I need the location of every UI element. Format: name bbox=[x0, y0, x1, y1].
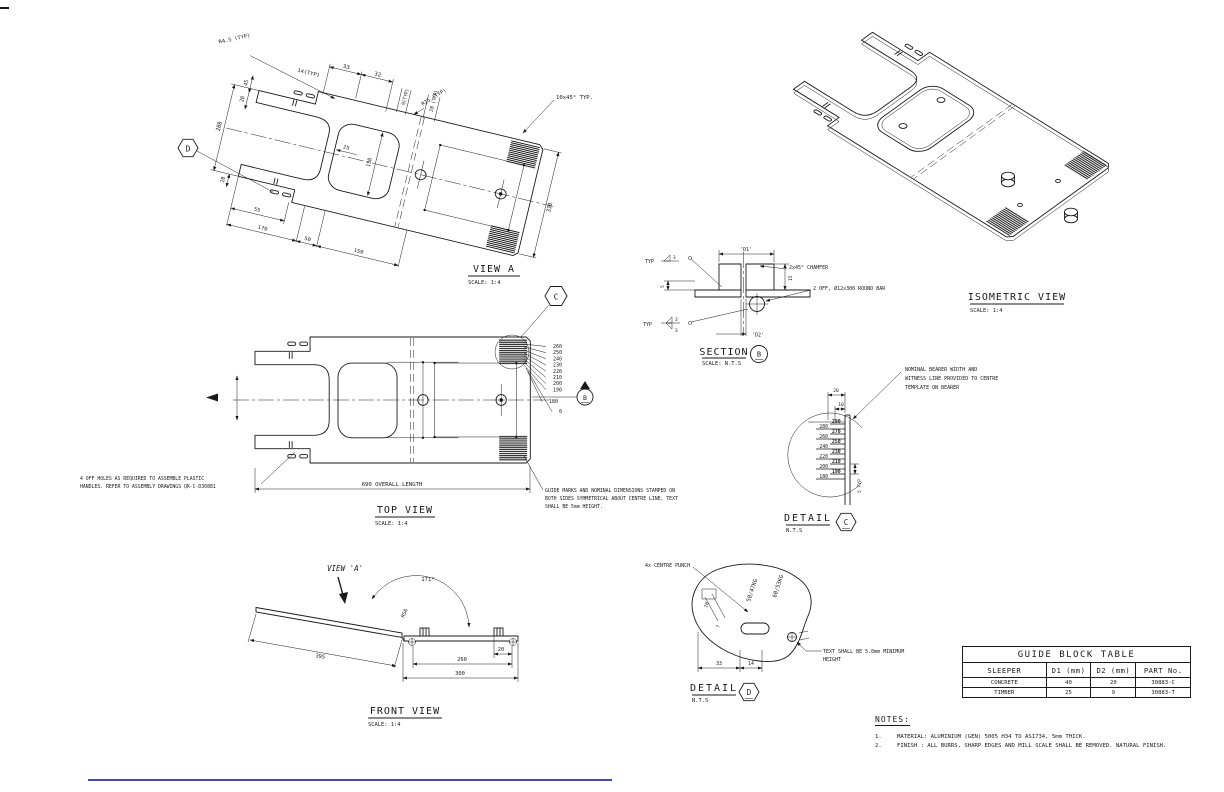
section-b: 'D1' 'D2' 5 15 TYP 3 TYP 3 3 2x45° CHAMF… bbox=[643, 247, 886, 367]
chamfer-label: 10x45° TYP. bbox=[556, 95, 593, 101]
view-a: 33 32 14(TYP) R4.5 (TYP) 9(TYP) 28 (TYP)… bbox=[176, 26, 593, 299]
dim-150: 150 bbox=[353, 248, 364, 256]
detail-c-right-values: 290 270 250 230 210 190 bbox=[832, 419, 841, 475]
edge-mark bbox=[0, 7, 9, 9]
dim-150i: 150 bbox=[366, 157, 374, 167]
svg-text:280: 280 bbox=[819, 424, 828, 430]
front-dim-260: 260 bbox=[457, 657, 467, 663]
view-a-scale: SCALE: 1:4 bbox=[468, 280, 500, 286]
front-view-flat-bar bbox=[404, 636, 518, 641]
section-b-scale: SCALE: N.T.S bbox=[702, 361, 741, 367]
detail-c-dim-10: 10 bbox=[838, 402, 844, 408]
detail-d-dimensions bbox=[698, 594, 822, 672]
cell-part: 30883-C bbox=[1136, 678, 1191, 688]
top-view-guide-marks-top bbox=[499, 340, 527, 365]
detail-c-note: NOMINAL BEARER WIDTH AND WITNESS LINE PR… bbox=[905, 367, 998, 391]
callout-c-letter: C bbox=[554, 293, 559, 302]
top-view-scale: SCALE: 1:4 bbox=[375, 521, 407, 527]
svg-text:220: 220 bbox=[819, 454, 828, 460]
detail-c-bubble: C bbox=[844, 518, 849, 527]
svg-text:250: 250 bbox=[832, 439, 841, 445]
engineering-drawing-sheet: 33 32 14(TYP) R4.5 (TYP) 9(TYP) 28 (TYP)… bbox=[0, 0, 1224, 792]
detail-d-title: DETAIL bbox=[690, 683, 738, 694]
weld-3a: 3 bbox=[675, 317, 678, 323]
dim-170: 170 bbox=[257, 225, 268, 233]
round-bar-note: 2 OFF, Ø12x300 ROUND BAR bbox=[813, 285, 886, 292]
detail-d-note: TEXT SHALL BE 5.0mm MINIMUM HEIGHT bbox=[823, 649, 904, 663]
dim-20a: 20 bbox=[239, 96, 247, 103]
svg-text:180: 180 bbox=[549, 399, 558, 405]
front-r50: R50 bbox=[400, 608, 409, 619]
section-dim-5: 5 bbox=[660, 285, 666, 288]
weld-symbol-bottom: TYP 3 3 bbox=[643, 309, 748, 334]
detail-c-dim-5typ: 5 TYP bbox=[857, 479, 863, 493]
dim-55: 55 bbox=[253, 207, 261, 214]
svg-text:260: 260 bbox=[553, 344, 562, 350]
front-angle-171: 171° bbox=[421, 577, 434, 583]
section-b-letter: B bbox=[583, 394, 587, 402]
isometric-scale: SCALE: 1:4 bbox=[970, 308, 1002, 314]
col-header-part: PART No. bbox=[1136, 663, 1191, 678]
detail-d-dim-14: 14 bbox=[748, 661, 754, 667]
isometric-bosses bbox=[899, 98, 1078, 223]
overall-length-label: 690 OVERALL LENGTH bbox=[362, 482, 423, 488]
callout-d-letter: D bbox=[186, 145, 191, 154]
guide-block-table: GUIDE BLOCK TABLE SLEEPER D1 (mm) D2 (mm… bbox=[962, 646, 1191, 698]
dim-25: 25 bbox=[342, 145, 350, 152]
top-view-guide-marks-bottom bbox=[499, 435, 527, 460]
note-number: 1. bbox=[875, 734, 897, 740]
note-item: 2. FINISH : ALL BURRS, SHARP EDGES AND M… bbox=[875, 743, 1205, 749]
isometric-view: ISOMETRIC VIEW SCALE: 1:4 bbox=[782, 24, 1112, 314]
svg-text:4 OFF HOLES AS REQUIRED TO ASS: 4 OFF HOLES AS REQUIRED TO ASSEMBLE PLAS… bbox=[80, 476, 204, 482]
table-row: CONCRETE 40 20 30883-C bbox=[963, 678, 1191, 688]
cell-part: 30883-T bbox=[1136, 688, 1191, 698]
detail-d-bubble: D bbox=[747, 688, 752, 697]
dim-r45: R4.5 (TYP) bbox=[218, 33, 251, 45]
view-direction-arrow bbox=[206, 394, 218, 402]
detail-d-kg2: 60/53KG bbox=[772, 574, 785, 599]
col-header-sleeper: SLEEPER bbox=[963, 663, 1047, 678]
svg-text:NOMINAL BEARER WIDTH AND: NOMINAL BEARER WIDTH AND bbox=[905, 367, 977, 373]
svg-text:BOTH SIDES SYMMETRICAL ABOUT: BOTH SIDES SYMMETRICAL ABOUT CENTRE LINE… bbox=[545, 496, 678, 502]
dim-208: 208 bbox=[216, 121, 224, 132]
top-view-note-left: 4 OFF HOLES AS REQUIRED TO ASSEMBLE PLAS… bbox=[80, 452, 295, 490]
svg-text:190: 190 bbox=[553, 387, 562, 393]
top-view-note-right: GUIDE MARKS AND NOMINAL DIMENSIONS STAMP… bbox=[524, 456, 678, 510]
weld-3-top: 3 bbox=[673, 255, 676, 261]
view-a-guide-marks-top bbox=[506, 140, 540, 169]
section-b-dimensions bbox=[664, 250, 810, 336]
svg-text:190: 190 bbox=[832, 469, 841, 475]
svg-text:HEIGHT: HEIGHT bbox=[823, 657, 841, 663]
detail-d-dim-10: 10 bbox=[703, 601, 710, 608]
note-number: 2. bbox=[875, 743, 897, 749]
dim-14typ: 14(TYP) bbox=[297, 68, 321, 79]
col-header-d2: D2 (mm) bbox=[1091, 663, 1136, 678]
note-text: FINISH : ALL BURRS, SHARP EDGES AND MILL… bbox=[897, 743, 1166, 749]
section-d2: 'D2' bbox=[752, 333, 764, 339]
detail-c-scale: N.T.S bbox=[786, 528, 802, 534]
detail-d-scale: N.T.S bbox=[692, 698, 708, 704]
svg-text:290: 290 bbox=[832, 419, 841, 425]
table-title: GUIDE BLOCK TABLE bbox=[963, 647, 1191, 663]
cell-d2: 9 bbox=[1091, 688, 1136, 698]
detail-c-title: DETAIL bbox=[784, 513, 832, 524]
section-b-title: SECTION bbox=[699, 347, 748, 358]
top-view-title: TOP VIEW bbox=[377, 505, 433, 516]
detail-d-punch: 4x CENTRE PUNCH bbox=[645, 563, 690, 569]
svg-text:SHALL BE 5mm HEIGHT.: SHALL BE 5mm HEIGHT. bbox=[545, 504, 603, 510]
guide-mark-values: 260 250 240 230 220 210 200 190 180 0 bbox=[524, 344, 562, 415]
weld-typ-bottom: TYP bbox=[643, 322, 652, 328]
cell-d1: 25 bbox=[1046, 688, 1091, 698]
section-b-bubble: B bbox=[757, 351, 761, 359]
svg-text:200: 200 bbox=[553, 381, 562, 387]
dim-20b: 20 bbox=[220, 176, 228, 183]
front-view-end-marks bbox=[408, 639, 517, 646]
svg-text:210: 210 bbox=[832, 459, 841, 465]
svg-text:HANDLES. REFER TO ASSEMBLY DRA: HANDLES. REFER TO ASSEMBLY DRAWINGS QR-C… bbox=[80, 484, 216, 490]
section-dim-15: 15 bbox=[788, 275, 794, 281]
cell-d1: 40 bbox=[1046, 678, 1091, 688]
front-view-dimensions bbox=[248, 576, 518, 682]
detail-c: 280 260 240 220 200 180 290 270 250 230 … bbox=[784, 367, 998, 534]
note-item: 1. MATERIAL: ALUMINIUM (GEN) 5005 H34 TO… bbox=[875, 734, 1205, 740]
svg-text:180: 180 bbox=[819, 474, 828, 480]
svg-text:230: 230 bbox=[553, 363, 562, 369]
front-view-scale: SCALE: 1:4 bbox=[368, 722, 400, 728]
front-view-clips bbox=[420, 628, 503, 636]
front-view: 395 260 300 20 171° R50 VIEW 'A' FRONT V… bbox=[248, 564, 518, 728]
svg-text:200: 200 bbox=[819, 464, 828, 470]
isometric-title: ISOMETRIC VIEW bbox=[968, 292, 1066, 303]
chamfer-note: 2x45° CHAMFER bbox=[789, 265, 829, 271]
svg-text:270: 270 bbox=[832, 429, 841, 435]
svg-text:WITNESS LINE PROVIDED TO CENTR: WITNESS LINE PROVIDED TO CENTRE bbox=[905, 376, 998, 382]
weld-3b: 3 bbox=[675, 328, 678, 334]
svg-text:250: 250 bbox=[553, 350, 562, 356]
detail-d-kg1: 50/47KG bbox=[746, 578, 759, 603]
notes-block: NOTES: 1. MATERIAL: ALUMINIUM (GEN) 5005… bbox=[875, 707, 1205, 749]
detail-d-boundary bbox=[692, 564, 811, 661]
view-a-direction: VIEW 'A' bbox=[327, 564, 363, 604]
table-row: TIMBER 25 9 30883-T bbox=[963, 688, 1191, 698]
svg-text:230: 230 bbox=[832, 449, 841, 455]
weld-typ-top: TYP bbox=[645, 259, 654, 265]
front-dim-300: 300 bbox=[455, 671, 465, 677]
svg-text:260: 260 bbox=[819, 434, 828, 440]
front-dim-20: 20 bbox=[498, 647, 505, 653]
cell-d2: 20 bbox=[1091, 678, 1136, 688]
view-a-dimension-lines bbox=[199, 43, 569, 298]
dim-45: 45 bbox=[243, 79, 251, 86]
cell-sleeper: CONCRETE bbox=[963, 678, 1047, 688]
view-a-cutout bbox=[326, 121, 402, 201]
note-text: MATERIAL: ALUMINIUM (GEN) 5005 H34 TO AS… bbox=[897, 734, 1086, 740]
cell-sleeper: TIMBER bbox=[963, 688, 1047, 698]
top-view-dimensions bbox=[206, 376, 530, 493]
top-view: 690 OVERALL LENGTH C 260 250 240 230 220… bbox=[80, 287, 678, 528]
notes-title: NOTES: bbox=[875, 715, 910, 726]
svg-text:0: 0 bbox=[559, 409, 562, 415]
view-a-direction-label: VIEW 'A' bbox=[327, 564, 363, 573]
detail-c-dim-20: 20 bbox=[833, 388, 839, 394]
dim-50: 50 bbox=[304, 236, 312, 243]
view-a-title: VIEW A bbox=[473, 264, 515, 275]
view-a-prong-slots bbox=[270, 90, 315, 197]
svg-text:220: 220 bbox=[553, 369, 562, 375]
svg-text:TEXT SHALL BE 5.0mm MINIMUM: TEXT SHALL BE 5.0mm MINIMUM bbox=[823, 649, 904, 655]
detail-d-dim-7: 7 bbox=[715, 624, 722, 629]
bottom-blue-line bbox=[88, 779, 612, 781]
view-a-guide-marks-bottom bbox=[486, 224, 520, 253]
front-dim-395: 395 bbox=[315, 653, 326, 661]
detail-d-dim-33: 33 bbox=[716, 661, 722, 667]
detail-c-left-values: 280 260 240 220 200 180 bbox=[819, 424, 828, 480]
svg-text:240: 240 bbox=[819, 444, 828, 450]
front-view-angled-plate bbox=[256, 608, 402, 638]
dim-330: 330 bbox=[546, 202, 554, 213]
svg-text:240: 240 bbox=[553, 356, 562, 362]
col-header-d1: D1 (mm) bbox=[1046, 663, 1091, 678]
weld-symbol-top: TYP 3 bbox=[645, 255, 722, 287]
svg-text:TEMPLATE ON BEARER: TEMPLATE ON BEARER bbox=[905, 385, 960, 391]
callout-d-hexagon: D bbox=[178, 139, 273, 192]
svg-text:GUIDE MARKS AND NOMINAL DIMENS: GUIDE MARKS AND NOMINAL DIMENSIONS STAMP… bbox=[545, 488, 675, 494]
svg-text:210: 210 bbox=[553, 375, 562, 381]
front-view-title: FRONT VIEW bbox=[370, 706, 440, 717]
section-d1: 'D1' bbox=[740, 247, 752, 253]
detail-d: 50/47KG 60/53KG 4x CENTRE PUNCH 10 7 33 … bbox=[645, 563, 904, 704]
